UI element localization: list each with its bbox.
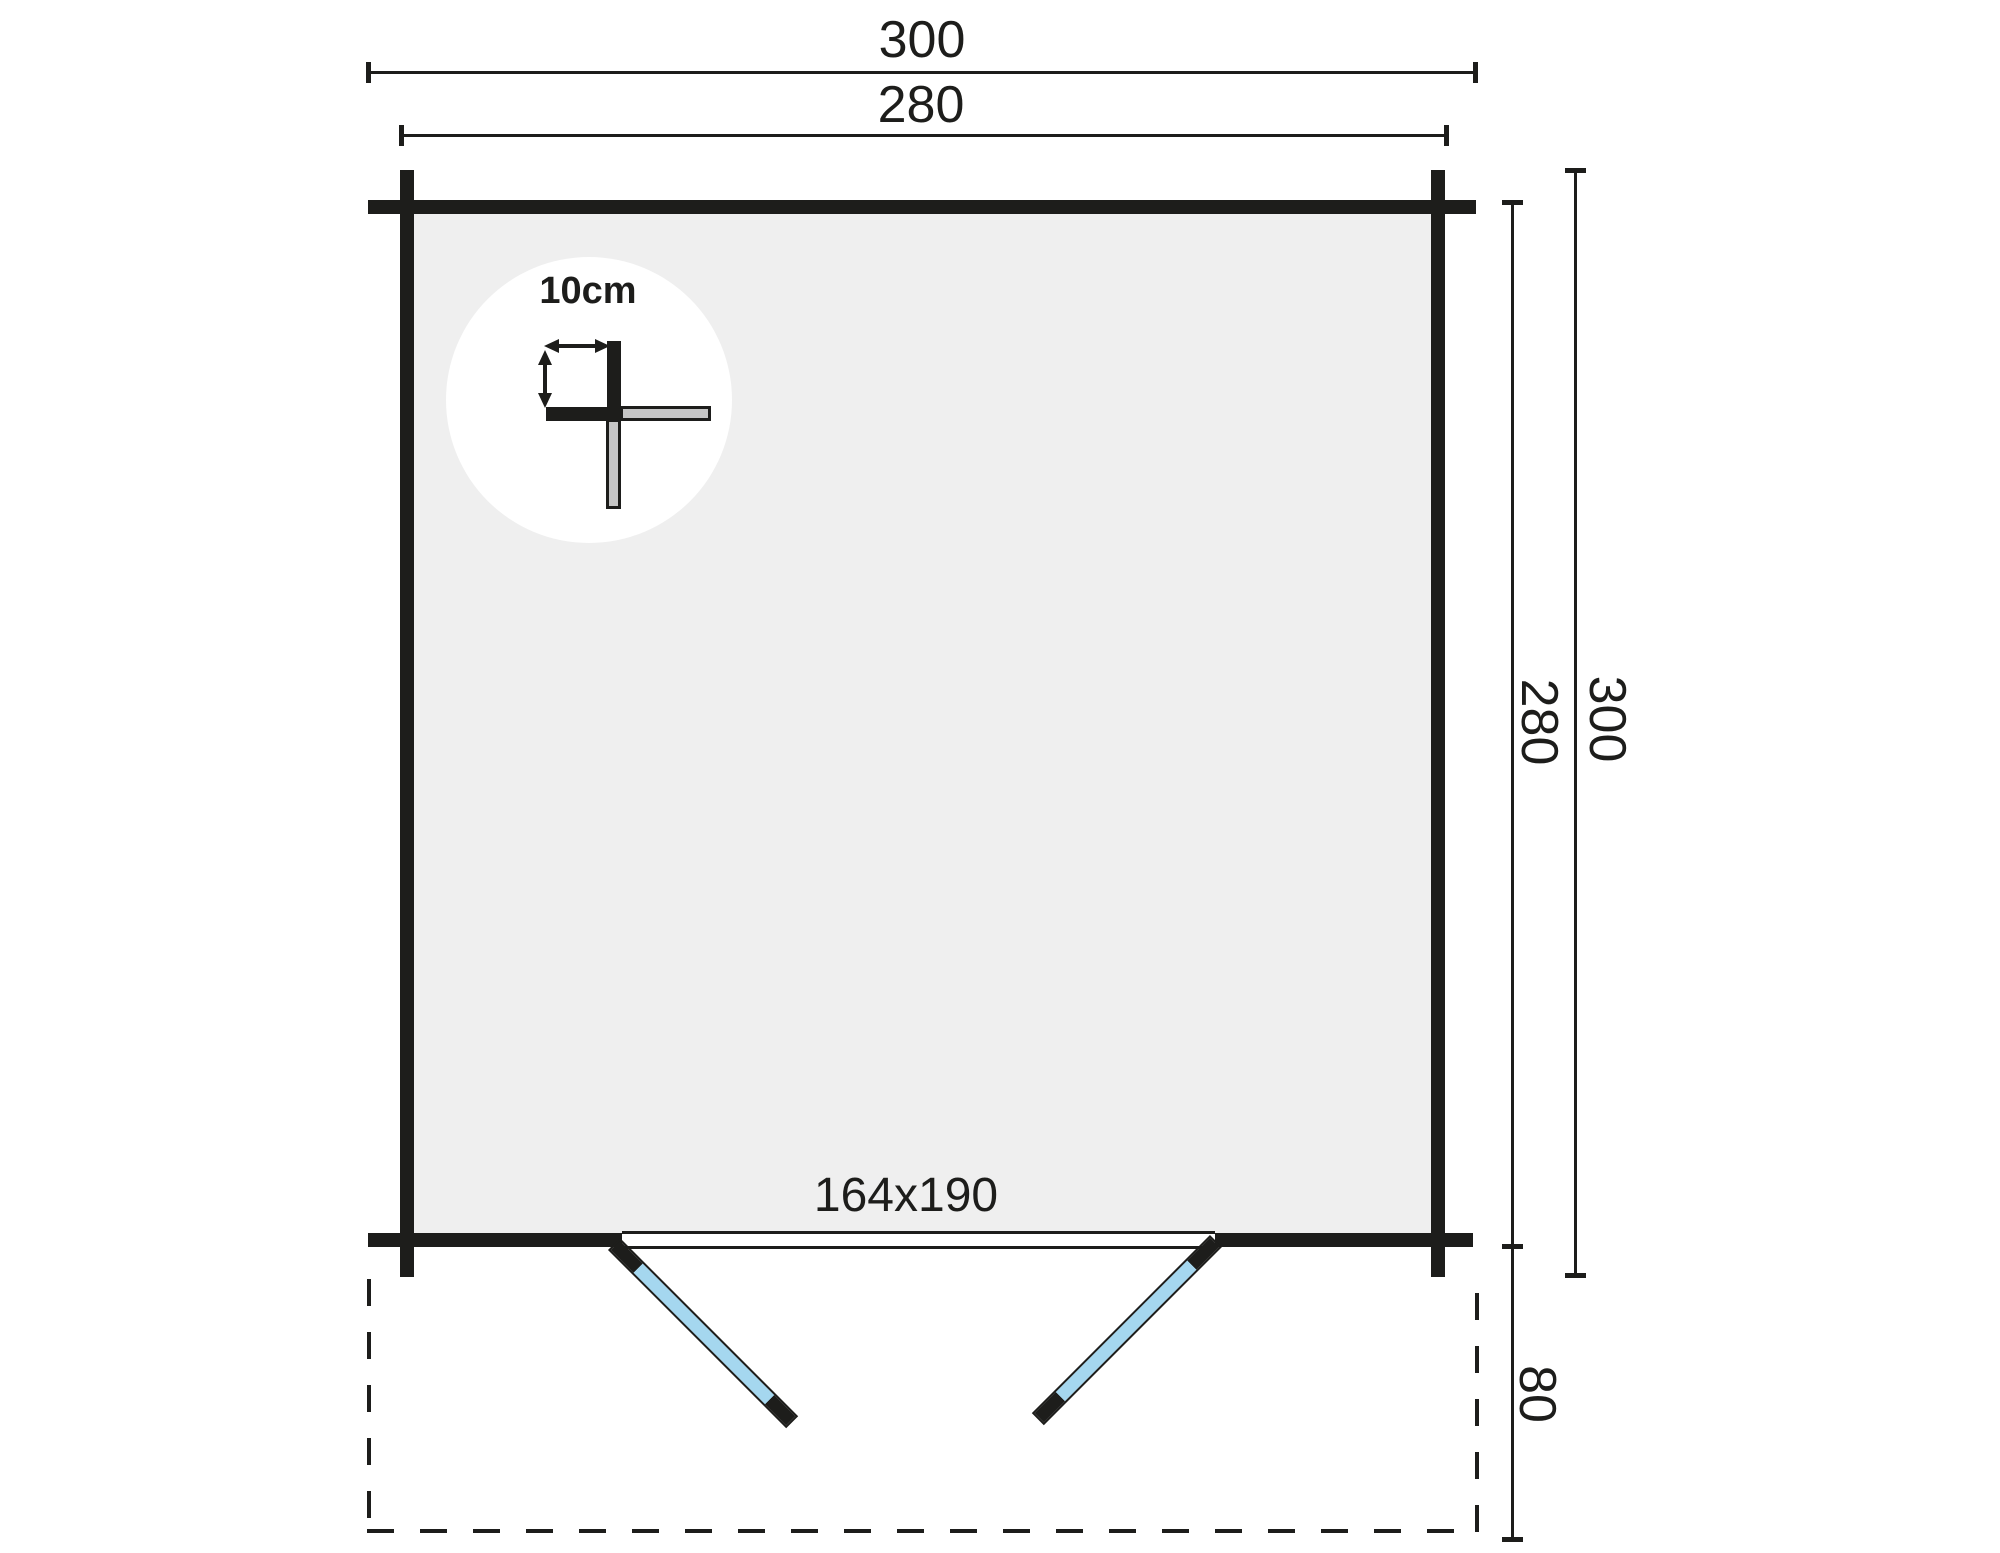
detail-log-end-bottom <box>606 419 621 509</box>
door-opening-threshold <box>622 1231 1215 1249</box>
porch-outline-left <box>367 1279 371 1533</box>
dim-right-outer-tick-bottom <box>1565 1273 1586 1278</box>
dim-top-inner-line <box>401 134 1447 137</box>
dim-right-inner-tick-top <box>1502 200 1523 205</box>
dim-top-outer-label: 300 <box>852 14 992 66</box>
dim-top-outer-tick-left <box>366 62 371 83</box>
dim-top-outer-line <box>368 71 1476 74</box>
dim-top-inner-tick-left <box>399 125 404 146</box>
dim-right-outer-line <box>1574 170 1577 1276</box>
dim-porch-label: 80 <box>1511 1324 1563 1464</box>
wall-bottom-left <box>368 1233 622 1247</box>
porch-outline-bottom <box>367 1529 1478 1533</box>
detail-height-arrow-icon <box>537 350 553 408</box>
dim-right-outer-label: 300 <box>1581 649 1633 789</box>
wall-bottom-right <box>1215 1233 1473 1247</box>
dim-top-inner-tick-right <box>1444 125 1449 146</box>
floor-plan-canvas: 300 280 10cm 164x190 280 300 <box>0 0 2000 1553</box>
wall-left <box>400 170 414 1277</box>
wall-right <box>1431 170 1445 1277</box>
door-leaf-left <box>608 1238 798 1428</box>
dim-top-outer-tick-right <box>1473 62 1478 83</box>
detail-width-arrow-icon <box>544 338 610 354</box>
dim-porch-tick-bottom <box>1502 1537 1523 1542</box>
wall-detail-thickness-label: 10cm <box>508 268 668 314</box>
dim-right-outer-tick-top <box>1565 168 1586 173</box>
wall-top <box>368 200 1476 214</box>
porch-outline-right <box>1475 1293 1479 1533</box>
door-leaf-right <box>1032 1235 1222 1425</box>
dim-right-inner-label: 280 <box>1513 652 1565 792</box>
door-size-label: 164x190 <box>796 1170 1016 1222</box>
dim-top-inner-label: 280 <box>851 79 991 131</box>
detail-log-end-right <box>620 406 711 421</box>
